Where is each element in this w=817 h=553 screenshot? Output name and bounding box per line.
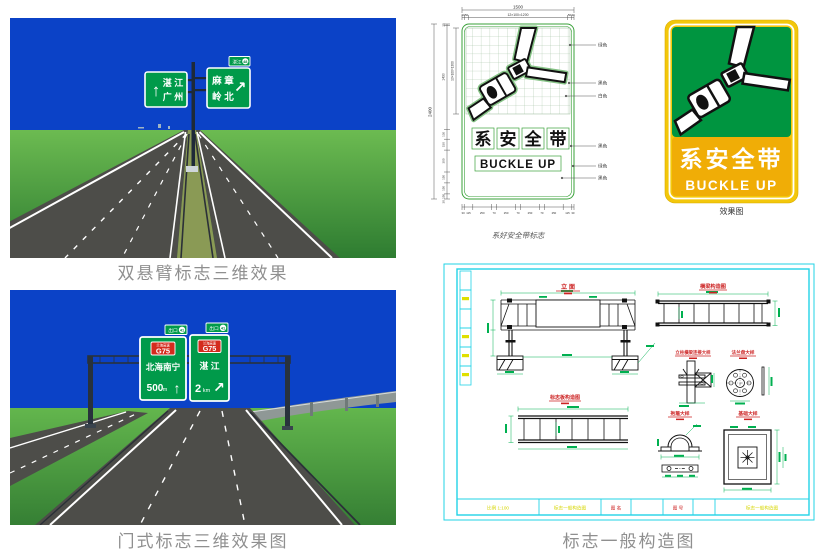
dim-label: 1500 (513, 5, 524, 10)
callout-label: 黑色 (598, 143, 608, 150)
tech-drawing: 系 安 全 带 BUCKLE UP 1500 30 50 12×100=1200… (420, 2, 655, 247)
gantry-scene: 出口 41 出口 41 兰海高速 G75 北海南宁 500 m ↑ (10, 290, 396, 525)
panel-cad-drawing: 立 面 (443, 263, 815, 521)
distance-value: 500 (147, 383, 164, 394)
cn-text-row: 系 安 全 带 (472, 128, 569, 149)
dim-label: 150 (442, 142, 446, 147)
cn-char: 安 (500, 129, 517, 149)
dim-label: 115 (565, 211, 570, 215)
dim-label: 250 (504, 211, 509, 215)
distance-value: 2 (195, 383, 201, 395)
exit-plate-left: 出口 41 (165, 325, 187, 335)
dim-label: 250 (528, 211, 533, 215)
caption-cad: 标志一般构造图 (443, 527, 815, 552)
dim-label: 250 (552, 211, 557, 215)
exit-num: 41 (221, 326, 225, 330)
dim-label: 30 (571, 211, 575, 215)
plate-num: 48 (243, 60, 247, 64)
dim-label: 150 (442, 186, 446, 191)
view-title: 法兰盘大样 (732, 349, 755, 356)
dim-label: 150 (442, 194, 446, 199)
cn-char: 全 (524, 129, 543, 149)
dim-label: 70 (540, 211, 544, 215)
dest-text: 北海南宁 (146, 361, 181, 372)
dim-label: 70 (493, 211, 497, 215)
caption-gantry: 门式标志三维效果图 (10, 527, 396, 552)
route-number: G75 (156, 347, 170, 356)
titleblock-sheet-name: 标志一般构造图 (554, 505, 587, 512)
titleblock-label-name: 图 名 (611, 505, 621, 512)
dest-text: 麻 章 (211, 75, 234, 87)
dim-label: 70 (516, 211, 520, 215)
dim-label: 115 (466, 211, 471, 215)
callout-label: 白色 (598, 93, 608, 100)
guide-sign-left: ↑ 湛 江 广 州 (145, 72, 187, 107)
view-title: 抱箍大样 (670, 410, 689, 417)
gantry-sign-left: 兰海高速 G75 北海南宁 500 m ↑ (140, 337, 186, 400)
titleblock-project: 标志一般构造图 (746, 505, 779, 512)
route-number: G75 (203, 344, 217, 353)
panel-gantry-render: 出口 41 出口 41 兰海高速 G75 北海南宁 500 m ↑ (10, 290, 396, 525)
dest-text: 广 州 (163, 91, 184, 102)
cad-sheet: 立 面 (443, 263, 815, 521)
dim-label: 12×100=1200 (508, 13, 529, 17)
panel-sign-render: 系安全带 BUCKLE UP 效果图 (663, 18, 800, 218)
distance-unit: km (203, 388, 211, 394)
sign-cn-text: 系安全带 (680, 146, 784, 172)
callout-label: 绿色 (598, 163, 608, 169)
dim-label: 1430 (442, 73, 446, 81)
dim-label: 2400 (428, 106, 433, 117)
view-title: 立柱横梁连接大样 (675, 349, 711, 356)
distance-unit: m (163, 387, 168, 393)
view-title: 标志板构造图 (549, 394, 580, 401)
dim-label: 20 (442, 23, 446, 27)
exit-arrow-icon: ↗ (213, 379, 225, 395)
exit-plate-right: 出口 41 (206, 323, 228, 333)
panel-cantilever-render: ↑ 湛 江 广 州 湛江 48 麻 章 岭 北 ↗ (10, 18, 396, 258)
exit-text: 出口 (209, 325, 219, 332)
callout-label: 绿色 (598, 42, 608, 48)
callout-label: 黑色 (598, 175, 608, 182)
view-title: 立 面 (561, 283, 575, 291)
dest-text: 岭 北 (212, 91, 234, 103)
dim-label: 13×100=1300 (451, 61, 455, 81)
view-title: 横梁构造图 (700, 282, 726, 290)
dim-label: 130 (442, 132, 446, 137)
en-text: BUCKLE UP (480, 159, 556, 171)
sheet-outer-frame (444, 264, 814, 520)
tech-caption: 系好安全带标志 (492, 231, 546, 240)
dim-label: 150 (442, 175, 446, 180)
titleblock-scale: 比例 1:100 (487, 505, 509, 512)
caption-cantilever: 双悬臂标志三维效果 (10, 259, 396, 284)
dim-left (431, 24, 459, 199)
sign-render: 系安全带 BUCKLE UP 效果图 (663, 18, 800, 218)
dim-label: 30 (462, 211, 466, 215)
exit-num: 41 (180, 328, 184, 332)
dim-label: 30 (571, 13, 575, 17)
dim-label: 50 (465, 13, 469, 17)
cantilever-scene: ↑ 湛 江 广 州 湛江 48 麻 章 岭 北 ↗ (10, 18, 396, 258)
cn-char: 系 (475, 130, 492, 149)
gantry-sign-right: 兰海高速 G75 湛 江 2 km ↗ (190, 335, 229, 401)
dest-text: 湛 江 (199, 360, 219, 371)
view-title: 基础大样 (738, 410, 757, 417)
straight-arrow-icon: ↑ (174, 380, 181, 396)
straight-arrow-icon: ↑ (152, 81, 161, 100)
dest-text: 湛 江 (163, 77, 184, 88)
page: ↑ 湛 江 广 州 湛江 48 麻 章 岭 北 ↗ 双悬臂标志三维效果 (0, 0, 817, 553)
sky (10, 18, 396, 131)
dim-label: 300 (442, 158, 446, 163)
dim-bottom (462, 204, 574, 210)
panel-tech-drawing: 系 安 全 带 BUCKLE UP 1500 30 50 12×100=1200… (420, 2, 655, 247)
exit-arrow-icon: ↗ (234, 79, 247, 96)
sign-en-text: BUCKLE UP (685, 178, 777, 193)
render-caption: 效果图 (720, 206, 744, 216)
cn-char: 带 (550, 129, 567, 149)
dim-label: 250 (480, 211, 485, 215)
plate-text: 湛江 (232, 59, 242, 66)
dim-label: 30 (442, 200, 446, 204)
exit-text: 出口 (168, 327, 178, 334)
callout-label: 黑色 (598, 80, 608, 87)
